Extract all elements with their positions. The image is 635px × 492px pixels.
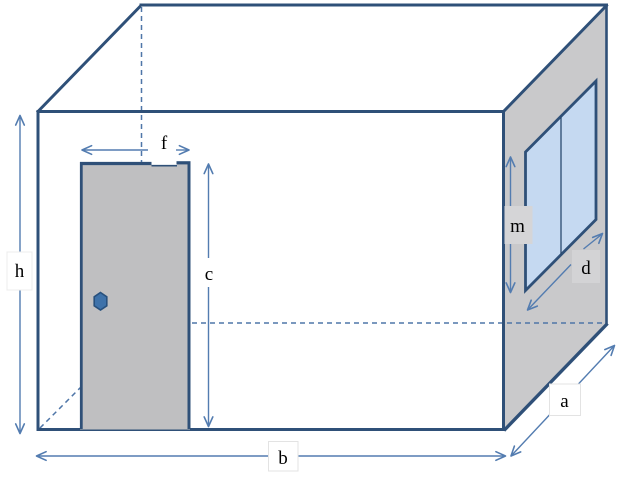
- svg-text:f: f: [161, 133, 168, 154]
- svg-text:h: h: [15, 261, 25, 282]
- svg-text:d: d: [581, 258, 591, 279]
- svg-text:c: c: [205, 264, 213, 285]
- svg-text:b: b: [278, 448, 288, 469]
- svg-text:m: m: [510, 216, 525, 237]
- svg-text:a: a: [560, 391, 569, 412]
